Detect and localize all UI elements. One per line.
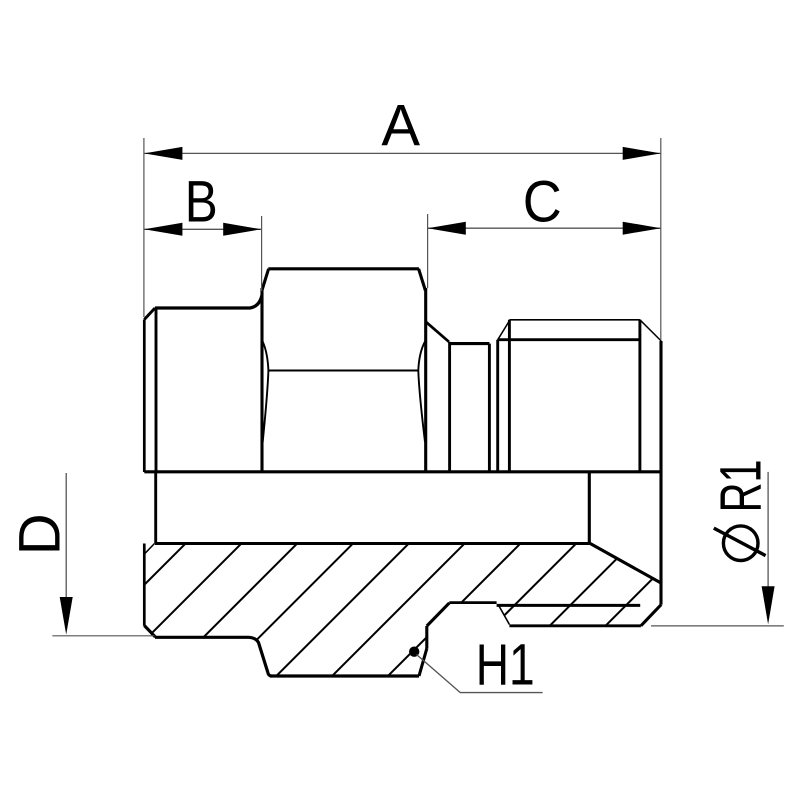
svg-text:C: C — [523, 169, 562, 234]
svg-text:A: A — [381, 93, 420, 158]
svg-text:R1: R1 — [709, 459, 774, 512]
svg-text:D: D — [8, 513, 73, 555]
svg-text:H1: H1 — [476, 633, 535, 698]
svg-text:B: B — [185, 169, 218, 234]
